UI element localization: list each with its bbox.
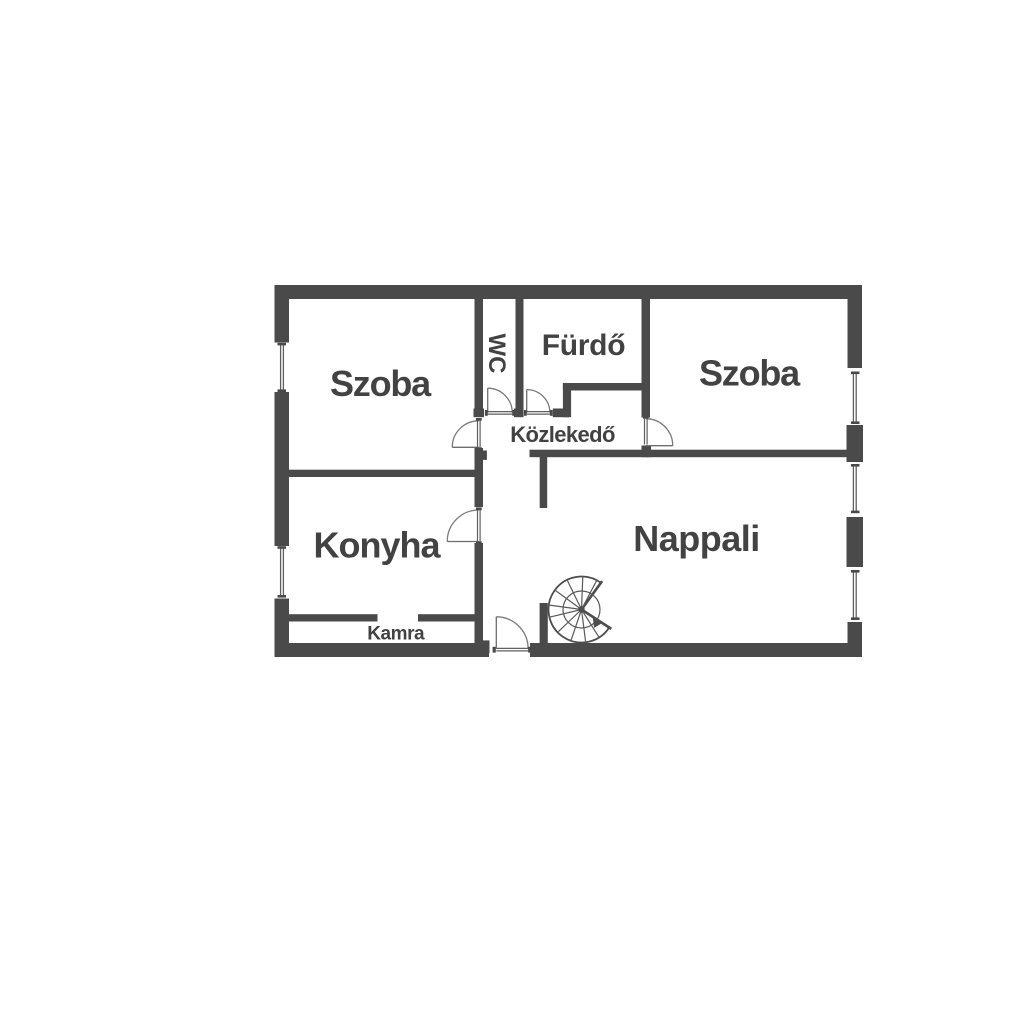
svg-text:Kamra: Kamra [367, 624, 425, 645]
svg-text:Szoba: Szoba [699, 353, 801, 394]
svg-text:WC: WC [483, 334, 510, 374]
svg-text:Szoba: Szoba [330, 363, 432, 404]
svg-text:Nappali: Nappali [633, 518, 760, 559]
svg-text:Fürdő: Fürdő [542, 329, 625, 362]
svg-text:Közlekedő: Közlekedő [510, 422, 615, 447]
svg-text:Konyha: Konyha [313, 525, 441, 566]
